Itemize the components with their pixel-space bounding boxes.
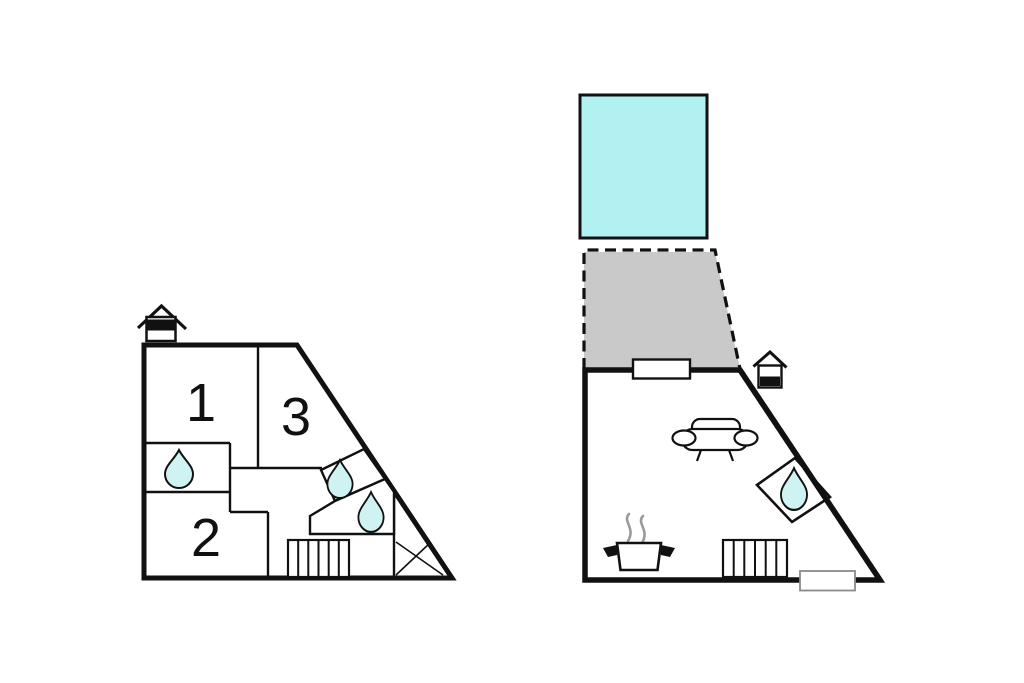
terrace-door bbox=[633, 360, 690, 379]
terrace bbox=[584, 252, 740, 369]
upper-stairs-icon bbox=[288, 540, 349, 577]
floor-plan-page: 1 2 3 bbox=[0, 0, 1024, 683]
upper-floor-plan: 1 2 3 bbox=[138, 306, 452, 578]
ground-stairs-icon bbox=[723, 540, 787, 577]
pool bbox=[580, 95, 707, 238]
ground-floor-plan bbox=[580, 95, 880, 591]
upper-level-house-icon bbox=[138, 306, 186, 341]
lower-level-house-icon bbox=[754, 352, 787, 388]
room-2-label: 2 bbox=[191, 508, 221, 568]
floor-plan-canvas: 1 2 3 bbox=[0, 0, 1024, 683]
room-3-label: 3 bbox=[281, 387, 311, 447]
room-1-label: 1 bbox=[186, 373, 216, 433]
side-door bbox=[800, 571, 855, 591]
